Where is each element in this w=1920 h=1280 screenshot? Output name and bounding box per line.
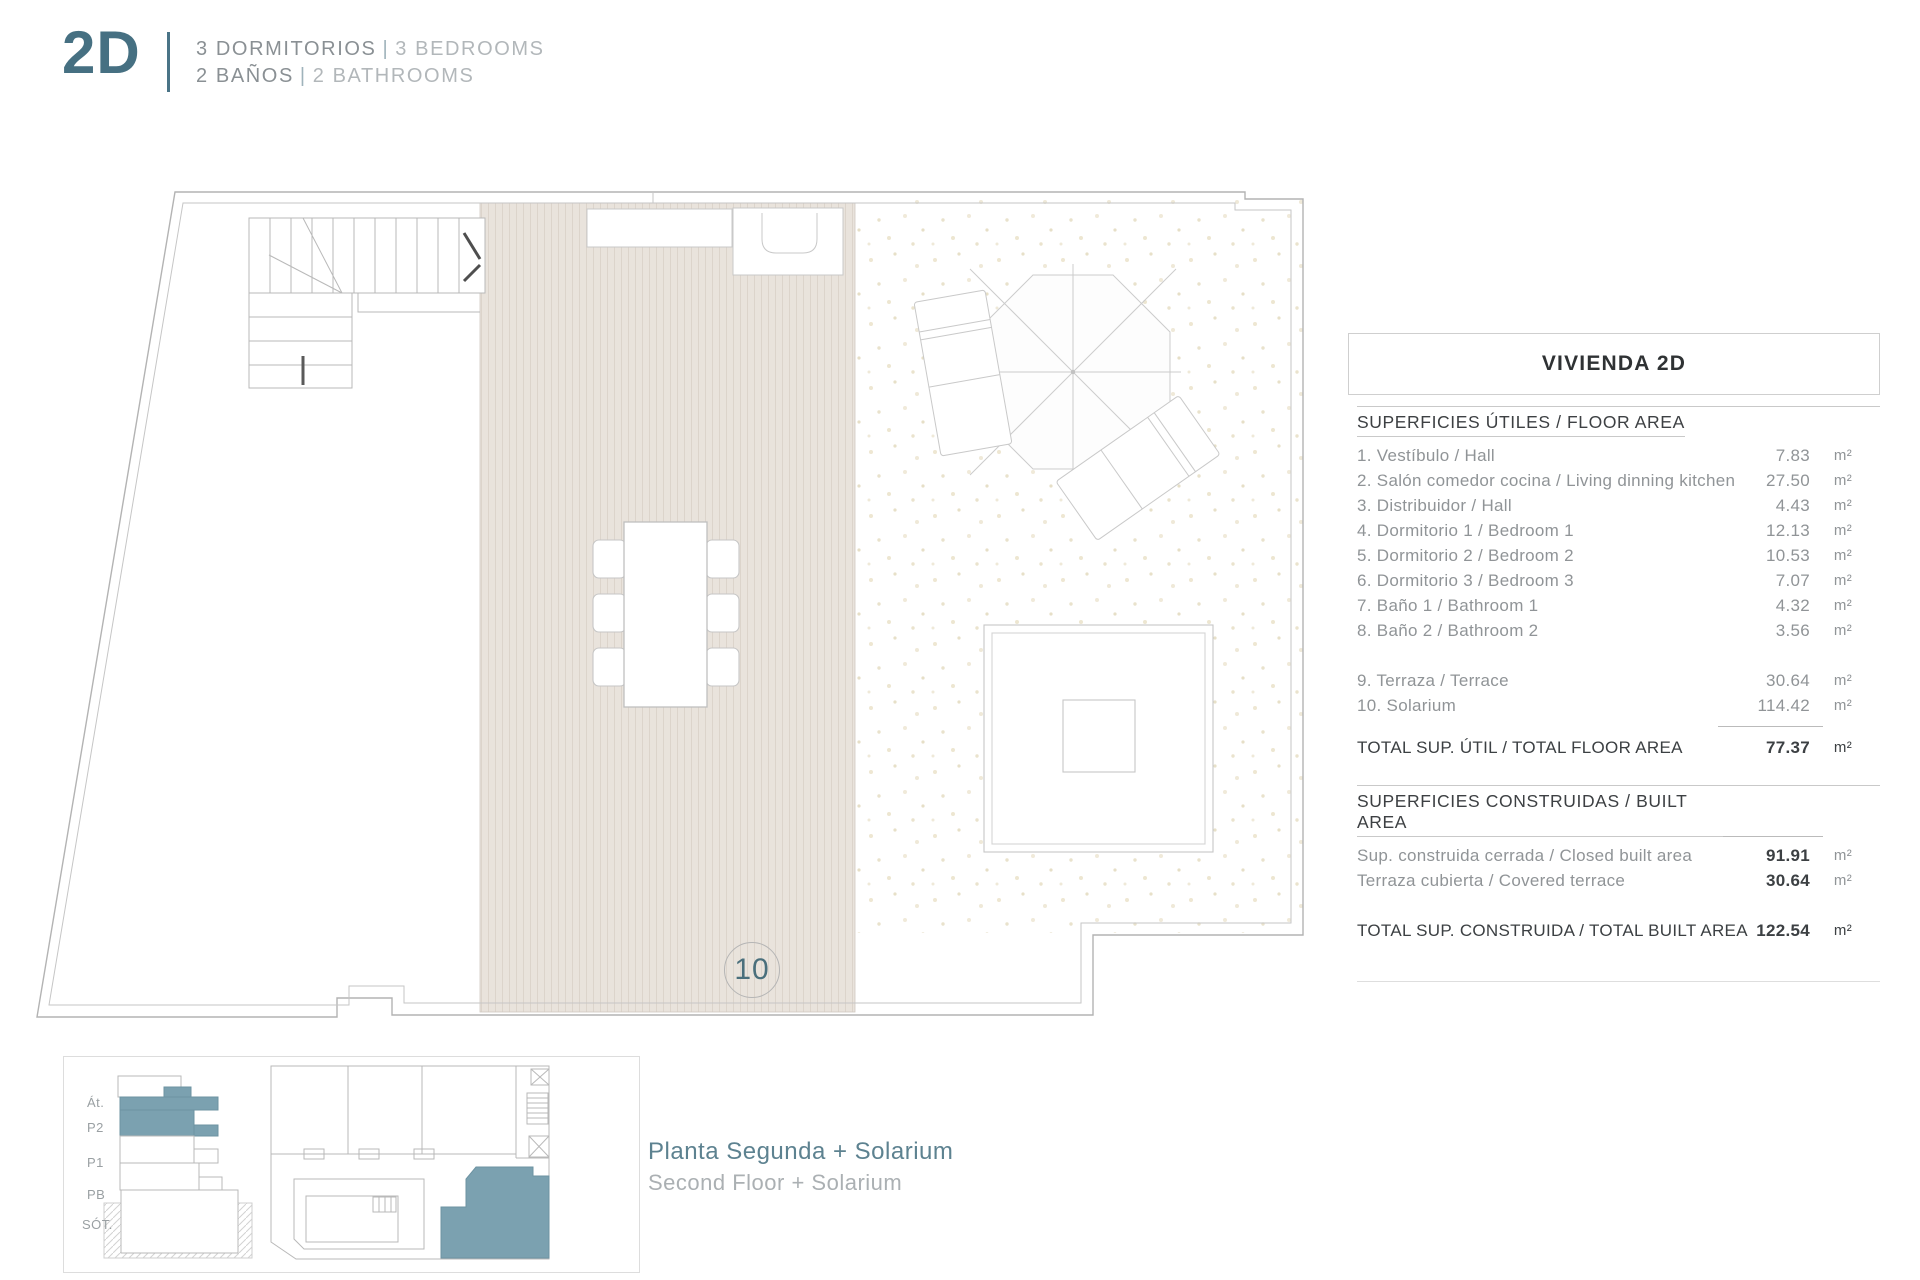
separator: | bbox=[376, 38, 395, 60]
row-value: 4.32 bbox=[1776, 593, 1810, 618]
key-drawings bbox=[64, 1057, 639, 1272]
rule bbox=[1357, 981, 1880, 982]
row-unit: m² bbox=[1834, 493, 1852, 518]
row-label: 3. Distribuidor / Hall bbox=[1357, 496, 1512, 515]
chair bbox=[593, 540, 626, 578]
deck-counter bbox=[587, 209, 732, 247]
location-key-panel: Át. P2 P1 PB SÓT. bbox=[63, 1056, 640, 1273]
row-label: 5. Dormitorio 2 / Bedroom 2 bbox=[1357, 546, 1574, 565]
bathrooms-en: 2 BATHROOMS bbox=[313, 65, 475, 87]
row-label: 1. Vestíbulo / Hall bbox=[1357, 446, 1495, 465]
floor-area-section: SUPERFICIES ÚTILES / FLOOR AREA 1. Vestí… bbox=[1357, 406, 1880, 982]
row-value: 12.13 bbox=[1766, 518, 1810, 543]
table-row: Terraza cubierta / Covered terrace30.64m… bbox=[1357, 868, 1880, 893]
floor-label-atico: Át. bbox=[87, 1095, 104, 1110]
chair bbox=[706, 648, 739, 686]
row-unit: m² bbox=[1834, 518, 1852, 543]
built-area-rows: Sup. construida cerrada / Closed built a… bbox=[1357, 843, 1880, 893]
row-unit: m² bbox=[1834, 868, 1852, 893]
table-row: Sup. construida cerrada / Closed built a… bbox=[1357, 843, 1880, 868]
table-row: 10. Solarium114.42m² bbox=[1357, 693, 1880, 718]
value-rule bbox=[1723, 836, 1823, 837]
row-unit: m² bbox=[1834, 468, 1852, 493]
built-area-heading: SUPERFICIES CONSTRUIDAS / BUILT AREA bbox=[1357, 791, 1723, 837]
separator: | bbox=[294, 65, 313, 87]
total-label: TOTAL SUP. ÚTIL / TOTAL FLOOR AREA bbox=[1357, 738, 1683, 757]
key-plan bbox=[271, 1066, 549, 1259]
header-divider bbox=[167, 32, 170, 92]
dining-set bbox=[593, 522, 739, 707]
chair bbox=[706, 540, 739, 578]
built-area-section: SUPERFICIES CONSTRUIDAS / BUILT AREA Sup… bbox=[1357, 785, 1880, 982]
chair bbox=[593, 648, 626, 686]
table-row: 7. Baño 1 / Bathroom 14.32m² bbox=[1357, 593, 1880, 618]
table-row: 9. Terraza / Terrace30.64m² bbox=[1357, 668, 1880, 693]
row-label: Terraza cubierta / Covered terrace bbox=[1357, 871, 1625, 890]
floor-area-heading-row: SUPERFICIES ÚTILES / FLOOR AREA bbox=[1357, 407, 1880, 437]
row-label: 6. Dormitorio 3 / Bedroom 3 bbox=[1357, 571, 1574, 590]
row-value: 3.56 bbox=[1776, 618, 1810, 643]
built-area-total-row: TOTAL SUP. CONSTRUIDA / TOTAL BUILT AREA… bbox=[1357, 918, 1880, 943]
row-value: 7.07 bbox=[1776, 568, 1810, 593]
table-row: 6. Dormitorio 3 / Bedroom 37.07m² bbox=[1357, 568, 1880, 593]
skylight bbox=[984, 625, 1213, 852]
chair bbox=[593, 594, 626, 632]
floor-label-p1: P1 bbox=[87, 1155, 104, 1170]
room-number-badge: 10 bbox=[724, 942, 780, 998]
floor-label-pb: PB bbox=[87, 1187, 105, 1202]
row-value: 7.83 bbox=[1776, 443, 1810, 468]
bedrooms-line: 3 DORMITORIOS|3 BEDROOMS bbox=[196, 36, 545, 63]
brochure-page: 2D 3 DORMITORIOS|3 BEDROOMS 2 BAÑOS|2 BA… bbox=[0, 0, 1920, 1280]
total-unit: m² bbox=[1834, 735, 1852, 760]
table-row: 3. Distribuidor / Hall4.43m² bbox=[1357, 493, 1880, 518]
bathrooms-es: 2 BAÑOS bbox=[196, 65, 294, 87]
table-row: 5. Dormitorio 2 / Bedroom 210.53m² bbox=[1357, 543, 1880, 568]
floor-label-p2: P2 bbox=[87, 1120, 104, 1135]
spacer bbox=[1357, 760, 1880, 785]
dining-table bbox=[624, 522, 707, 707]
row-value: 4.43 bbox=[1776, 493, 1810, 518]
room-number: 10 bbox=[734, 953, 769, 987]
row-label: Sup. construida cerrada / Closed built a… bbox=[1357, 846, 1692, 865]
table-row: 1. Vestíbulo / Hall7.83m² bbox=[1357, 443, 1880, 468]
spacer bbox=[1357, 727, 1880, 735]
bathrooms-line: 2 BAÑOS|2 BATHROOMS bbox=[196, 63, 545, 90]
spacer bbox=[1357, 718, 1880, 726]
floor-plan-drawing bbox=[33, 186, 1318, 1046]
chair bbox=[706, 594, 739, 632]
row-value: 10.53 bbox=[1766, 543, 1810, 568]
row-value: 91.91 bbox=[1766, 843, 1810, 868]
row-value: 27.50 bbox=[1766, 468, 1810, 493]
row-unit: m² bbox=[1834, 593, 1852, 618]
bedrooms-en: 3 BEDROOMS bbox=[395, 38, 544, 60]
row-label: 10. Solarium bbox=[1357, 696, 1456, 715]
row-unit: m² bbox=[1834, 693, 1852, 718]
floor-area-total-row: TOTAL SUP. ÚTIL / TOTAL FLOOR AREA77.37m… bbox=[1357, 735, 1880, 760]
row-label: 7. Baño 1 / Bathroom 1 bbox=[1357, 596, 1538, 615]
plan-caption: Planta Segunda + Solarium Second Floor +… bbox=[648, 1138, 953, 1196]
spacer bbox=[1357, 643, 1880, 668]
caption-en: Second Floor + Solarium bbox=[648, 1170, 953, 1196]
spacer bbox=[1357, 893, 1880, 918]
row-value: 30.64 bbox=[1766, 868, 1810, 893]
row-unit: m² bbox=[1834, 668, 1852, 693]
table-row: 2. Salón comedor cocina / Living dinning… bbox=[1357, 468, 1880, 493]
outdoor-kitchen bbox=[733, 208, 843, 275]
caption-es: Planta Segunda + Solarium bbox=[648, 1138, 953, 1166]
building-section bbox=[104, 1076, 252, 1258]
total-label: TOTAL SUP. CONSTRUIDA / TOTAL BUILT AREA bbox=[1357, 921, 1748, 940]
row-unit: m² bbox=[1834, 843, 1852, 868]
floor-area-rows: 1. Vestíbulo / Hall7.83m² 2. Salón comed… bbox=[1357, 443, 1880, 643]
built-area-heading-row: SUPERFICIES CONSTRUIDAS / BUILT AREA bbox=[1357, 786, 1880, 837]
floor-plan: 10 bbox=[33, 186, 1318, 1046]
floor-area-heading: SUPERFICIES ÚTILES / FLOOR AREA bbox=[1357, 412, 1685, 437]
row-label: 2. Salón comedor cocina / Living dinning… bbox=[1357, 471, 1735, 490]
row-label: 4. Dormitorio 1 / Bedroom 1 bbox=[1357, 521, 1574, 540]
header-specs: 3 DORMITORIOS|3 BEDROOMS 2 BAÑOS|2 BATHR… bbox=[196, 36, 545, 90]
unit-code: 2D bbox=[62, 18, 141, 87]
row-unit: m² bbox=[1834, 568, 1852, 593]
bedrooms-es: 3 DORMITORIOS bbox=[196, 38, 376, 60]
row-value: 30.64 bbox=[1766, 668, 1810, 693]
total-value: 122.54 bbox=[1756, 918, 1810, 943]
row-unit: m² bbox=[1834, 618, 1852, 643]
areas-table: VIVIENDA 2D SUPERFICIES ÚTILES / FLOOR A… bbox=[1348, 333, 1880, 982]
row-label: 9. Terraza / Terrace bbox=[1357, 671, 1509, 690]
row-unit: m² bbox=[1834, 543, 1852, 568]
row-value: 114.42 bbox=[1757, 693, 1810, 718]
table-row: 8. Baño 2 / Bathroom 23.56m² bbox=[1357, 618, 1880, 643]
total-unit: m² bbox=[1834, 918, 1852, 943]
row-label: 8. Baño 2 / Bathroom 2 bbox=[1357, 621, 1538, 640]
floor-label-sotano: SÓT. bbox=[82, 1217, 113, 1232]
table-title: VIVIENDA 2D bbox=[1348, 333, 1880, 395]
total-value: 77.37 bbox=[1766, 735, 1810, 760]
table-row: 4. Dormitorio 1 / Bedroom 112.13m² bbox=[1357, 518, 1880, 543]
row-unit: m² bbox=[1834, 443, 1852, 468]
